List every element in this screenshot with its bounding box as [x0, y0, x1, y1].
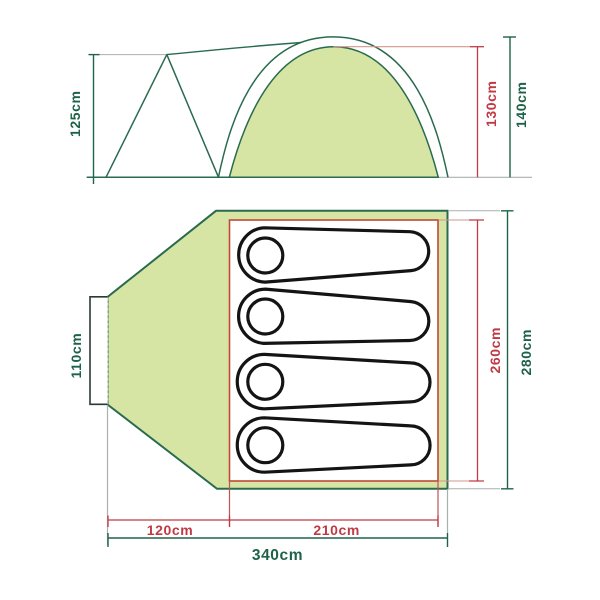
svg-text:280cm: 280cm	[518, 329, 534, 376]
svg-text:120cm: 120cm	[147, 522, 194, 538]
svg-text:110cm: 110cm	[68, 333, 84, 379]
svg-text:340cm: 340cm	[252, 547, 303, 564]
svg-text:260cm: 260cm	[487, 327, 503, 374]
svg-text:130cm: 130cm	[483, 80, 499, 127]
svg-text:140cm: 140cm	[513, 81, 529, 128]
svg-text:125cm: 125cm	[67, 90, 83, 137]
svg-text:210cm: 210cm	[313, 522, 360, 538]
